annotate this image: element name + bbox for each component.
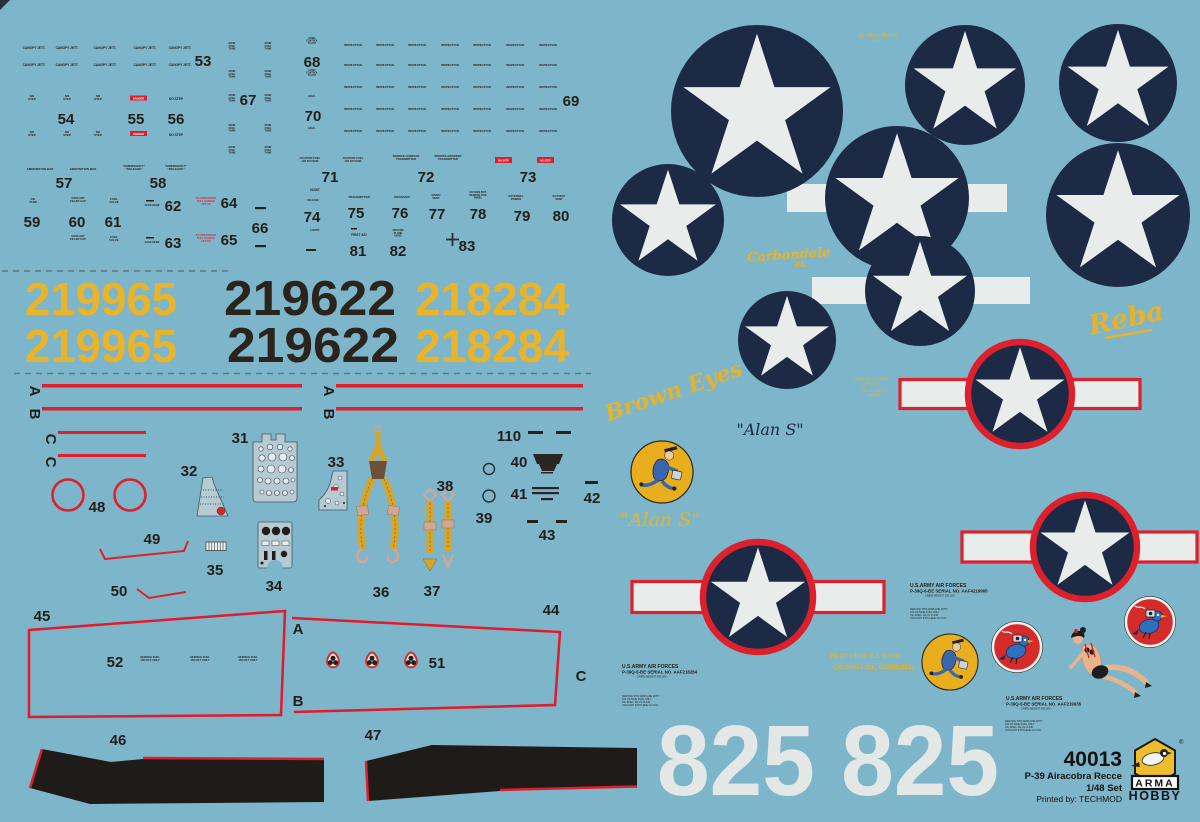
dash-decal	[351, 228, 357, 230]
stencil-text: DANGER	[133, 132, 144, 136]
part-number-label: 41	[511, 486, 528, 503]
instrument-panel-decal-31	[253, 434, 297, 502]
stencil-text: "EMERGENCY""RELEASE"	[165, 164, 188, 171]
stencil-text: INSPECTION	[473, 107, 491, 111]
stencil-text: INSPECTION	[506, 63, 524, 67]
part-number-label: 81	[350, 243, 367, 260]
serial-yellow: 218284	[415, 320, 569, 372]
stencil-text: INSPECTION	[408, 85, 426, 89]
part-number-label: A	[26, 386, 43, 397]
stencil-text: INSPECTION	[506, 43, 524, 47]
stencil-text: INSPECTION	[344, 129, 362, 133]
stencil-text: NO STEP	[540, 159, 551, 162]
part-number-label: 35	[207, 562, 224, 579]
part-number-label: 37	[424, 583, 441, 600]
part-number-label: 75	[348, 205, 365, 222]
part-number-label: 50	[111, 583, 128, 600]
script-crew2-sub: ARMORER	[866, 394, 881, 397]
part-number-label: 51	[429, 655, 446, 672]
stencil-text: DANGER	[133, 96, 144, 100]
part-number-label: 74	[304, 209, 321, 226]
crow-camera-squadron-emblem	[1125, 597, 1176, 648]
stencil-text: INSPECTION	[408, 43, 426, 47]
stencil-text: COOLANTFILLER CAP	[70, 196, 86, 203]
stencil-text: INSPECTION	[506, 107, 524, 111]
trim-stripe-decals	[42, 384, 583, 457]
script-carbondale: Carbondale	[747, 245, 831, 266]
part-number-label: 47	[365, 727, 382, 744]
script-carbondale-sub: PA.	[794, 260, 808, 269]
dash-decal	[556, 431, 571, 434]
stencil-text: COOLANTFILLER CAP	[70, 234, 86, 241]
tail-code-decals: 825 825	[657, 705, 999, 817]
part-number-label: 58	[150, 175, 167, 192]
stencil-text: MAINFUELTANK	[228, 123, 235, 133]
stencil-text: MAINFUELTANK	[264, 145, 271, 155]
part-number-label: 78	[470, 206, 487, 223]
part-number-label: 44	[543, 602, 560, 619]
stencil-text: BATTERYVENT	[553, 194, 566, 201]
star-insignia	[865, 236, 975, 346]
propeller-warning-emblem	[327, 653, 339, 668]
part-number-label: 57	[56, 175, 73, 192]
part-number-label: 69	[563, 93, 580, 110]
part-number-label: 53	[195, 53, 212, 70]
part-number-label: C	[42, 434, 59, 445]
part-number-label: 82	[390, 243, 407, 260]
product-code: 40013	[1064, 748, 1122, 771]
stencil-text: INSPECTION	[344, 85, 362, 89]
part-number-label: 54	[58, 111, 75, 128]
stencil-text: JACK HERE	[145, 240, 160, 244]
part-number-label: 63	[165, 235, 182, 252]
stencil-text: INSPECTION	[408, 107, 426, 111]
stencil-text: FUELVALVE	[109, 235, 119, 242]
stencil-text: FIRST AID	[351, 233, 367, 237]
stencil-text: CANOPY JETT.	[23, 46, 46, 50]
script-crew2: Sgt. L. Baum	[861, 388, 888, 393]
dash-decal	[556, 520, 567, 523]
part-number-label: 34	[266, 578, 283, 595]
seat-harness-decal-36	[356, 426, 399, 562]
data-block-line: CREW WEIGHT 200 LBS.	[637, 675, 668, 679]
part-number-label: 83	[459, 238, 476, 255]
stencil-text: NOSTEP	[63, 130, 71, 137]
stencil-text: INSPECTION	[473, 43, 491, 47]
part-number-label: 65	[221, 232, 238, 249]
stencil-text: SERVICE FUEL100 OCT. ONLY	[140, 655, 160, 662]
printed-by: Printed by: TECHMOD	[1036, 794, 1122, 804]
product-scale: 1/48 Set	[1086, 783, 1123, 794]
stencil-text: AVIATION FUEL100 OCTANE	[342, 156, 363, 163]
stencil-text: COWLCONTROLPLATE	[306, 37, 318, 45]
stencil-text: JACK HERE	[145, 203, 160, 207]
part-number-label: 60	[69, 214, 86, 231]
stencil-text: TO OPEN DOORPULL HANDLELIFT UP	[196, 196, 216, 206]
part-number-label: 32	[181, 463, 198, 480]
stencil-text: NO STEP	[169, 133, 184, 137]
part-number-label: 110	[497, 428, 521, 445]
dash-decal	[255, 207, 266, 209]
stencil-text: MAX.	[309, 126, 316, 130]
data-block-line: P-39Q-5-BE SERIAL NO. AAF219935	[1006, 702, 1082, 707]
stencil-text: NOSTEP	[63, 94, 71, 101]
stencil-text: SERVICE THIS AIRPLANE WITH100 OCTANE FUE…	[622, 695, 659, 707]
stencil-text: CANOPY JETT.	[94, 46, 117, 50]
part-number-label: 71	[322, 169, 339, 186]
part-number-label: 70	[305, 108, 322, 125]
stencil-text: SERVICE THIS AIRPLANE WITH100 OCTANE FUE…	[1005, 720, 1042, 732]
part-number-label: 79	[514, 208, 531, 225]
stencil-text: CANOPY JETT.	[134, 46, 157, 50]
part-number-label: 42	[584, 490, 601, 507]
stencil-text: NOSTEP	[94, 94, 102, 101]
courier-squadron-emblem	[631, 441, 693, 503]
stencil-text: INSPECTION	[506, 129, 524, 133]
part-number-label: C	[576, 668, 587, 685]
part-number-label: 43	[539, 527, 556, 544]
stencil-text: AMMUNITION BOX	[27, 167, 54, 171]
stencil-text: HOIST	[310, 188, 320, 192]
stencil-text: CANOPY JETT.	[169, 46, 192, 50]
part-number-label: 59	[24, 214, 41, 231]
stencil-text: OXYGEN BOT.REMOVE THISPANEL	[469, 191, 487, 200]
part-number-label: 68	[304, 54, 321, 71]
crow-camera-squadron-emblem	[992, 622, 1043, 673]
stencil-text: INSPECTION	[376, 107, 394, 111]
part-number-label: B	[293, 693, 304, 710]
stencil-text: MAINFUELTANK	[264, 41, 271, 51]
stencil-text: INSPECTION	[441, 129, 459, 133]
part-number-label: 67	[240, 92, 257, 109]
stencil-text: MAINFUELTANK	[228, 69, 235, 79]
data-block-line: P-39Q-5-BE SERIAL NO. AAF218284	[622, 670, 698, 675]
star-insignia	[1059, 24, 1177, 142]
stencil-text: INSPECTION	[506, 85, 524, 89]
anti-glare-panel-decals	[30, 745, 637, 804]
stencil-text: MAINFUELTANK	[264, 93, 271, 103]
stencil-text: REMOTE AIRSPEEDTRANSMITTER	[435, 154, 462, 161]
script-crew1-sub: CREW CHIEF	[862, 383, 880, 386]
stencil-text: INSPECTION	[376, 129, 394, 133]
star-insignia	[738, 291, 836, 389]
serial-black: 219622	[224, 272, 396, 326]
stencil-text: CANOPY JETT.	[169, 63, 192, 67]
serial-yellow: 219965	[25, 320, 177, 372]
stencil-text: "EMERGENCY""RELEASE"	[123, 164, 146, 171]
part-number-label: 45	[34, 608, 51, 625]
part-number-label: 48	[89, 499, 106, 516]
star-insignia	[905, 25, 1025, 145]
stencil-text: INSPECTION	[376, 85, 394, 89]
product-name: P-39 Airacobra Recce	[1025, 771, 1122, 782]
dash-decal	[146, 237, 154, 239]
dash-decal	[146, 200, 154, 202]
placard-strip-decal-35	[206, 542, 226, 551]
star-insignia	[1046, 143, 1190, 287]
part-number-label: 31	[232, 430, 249, 447]
stencil-text: SERVICE THIS AIRPLANE WITH100 OCTANE FUE…	[910, 608, 947, 620]
decal-sheet: 219965 219622 218284 219965 219622 21828…	[0, 0, 1200, 822]
part-number-label: 56	[168, 111, 185, 128]
stencil-text: MAINFUELTANK	[228, 41, 235, 51]
stencil-text: TRANSMITTER	[348, 195, 370, 199]
stencil-text: TO OPEN DOORPULL HANDLELIFT UP	[196, 233, 216, 243]
data-block-line: CREW WEIGHT 200 LBS.	[925, 594, 956, 598]
dash-decal	[255, 245, 266, 247]
sheet-corner-mark	[0, 0, 10, 10]
product-info: 40013 P-39 Airacobra Recce 1/48 Set Prin…	[1025, 748, 1123, 804]
stencil-text: OILTANK	[29, 197, 38, 204]
stencil-text: GROUNDPLANEHERE	[392, 229, 403, 238]
part-number-label: A	[320, 386, 337, 397]
stencil-text: AVIATION FUEL100 OCTANE	[299, 156, 320, 163]
data-block-line: CREW WEIGHT 200 LBS.	[1021, 707, 1052, 711]
stencil-text: NO STEP	[498, 159, 509, 162]
part-number-label: 73	[520, 169, 537, 186]
stencil-text: EXTERNALPOWER	[508, 194, 523, 201]
stencil-text: CANOPY JETT.	[94, 63, 117, 67]
dash-decal	[585, 481, 598, 484]
stencil-text: INSPECTION	[344, 63, 362, 67]
stencil-text: INSPECTION	[344, 107, 362, 111]
stencil-text: INSPECTION	[408, 129, 426, 133]
stencil-text: MAINFUELTANK	[228, 93, 235, 103]
propeller-warning-emblems-51	[327, 653, 417, 668]
star-and-bars-insignia	[962, 495, 1197, 599]
script-brown-eyes: Brown Eyes	[601, 356, 746, 428]
propeller-warning-emblem	[405, 653, 417, 668]
star-insignia	[671, 25, 843, 197]
script-alan-s-yellow: "Alan S"	[620, 509, 700, 531]
star-and-bars-insignia	[632, 542, 884, 652]
serial-number-decals: 219965 219622 218284 219965 219622 21828…	[25, 272, 569, 373]
stencil-text: MAX.	[309, 94, 316, 98]
stencil-text: NOSTEP	[94, 130, 102, 137]
stencil-text: AMMUNITION BOX	[70, 167, 97, 171]
registered-mark: ®	[1179, 739, 1184, 746]
stencil-text: INSPECTION	[441, 63, 459, 67]
script-pilot-line: PILOT LIEUT. C.J. DAVIS	[830, 654, 900, 660]
stencil-text: INSPECTION	[539, 129, 557, 133]
part-number-label: B	[26, 409, 43, 420]
stencil-text: INSPECTION	[376, 63, 394, 67]
cross-decal	[452, 233, 454, 246]
script-alan-s-navy: "Alan S"	[736, 420, 803, 439]
stencil-text: INSPECTION	[473, 85, 491, 89]
stencil-text: RELEASE	[307, 199, 319, 202]
stencil-text: INSPECTION	[344, 43, 362, 47]
script-pilot-top-sub: PILOT	[871, 39, 883, 43]
stencil-text: INSPECTION	[441, 85, 459, 89]
part-number-label: 36	[373, 584, 390, 601]
stencil-text: SERVICE FUEL100 OCT. ONLY	[238, 655, 258, 662]
stencil-text: MAINFUELTANK	[228, 145, 235, 155]
stencil-text: CANOPY JETT.	[23, 63, 46, 67]
stencil-text: INSPECTION	[441, 43, 459, 47]
part-number-label: 80	[553, 208, 570, 225]
stencil-text: SERVICE FUEL100 OCT. ONLY	[190, 655, 210, 662]
part-number-label: B	[320, 409, 337, 420]
stencil-text: INSPECTION	[539, 43, 557, 47]
part-number-label: 76	[392, 205, 409, 222]
part-number-label: 38	[437, 478, 454, 495]
stencil-text: HOIST	[310, 228, 319, 232]
stencil-text: MAINFUELTANK	[264, 69, 271, 79]
star-and-bars-insignia	[900, 342, 1140, 446]
console-decal-32	[197, 477, 228, 516]
stencil-text: INSPECTION	[376, 43, 394, 47]
switch-panel-decal-34	[258, 522, 292, 576]
stencil-text: INSPECTION	[473, 129, 491, 133]
small-part-decals	[532, 454, 563, 500]
brand-hobby: HOBBY	[1129, 789, 1182, 803]
part-number-label: 40	[511, 454, 528, 471]
script-cc-line: C/C S/SGT. C.L. CEDRICELLI	[833, 665, 915, 671]
serial-yellow: 219965	[25, 273, 177, 325]
data-block-line: P-39Q-6-BE SERIAL NO. AAF4219965	[910, 589, 988, 594]
part-number-label: 52	[107, 654, 124, 671]
stencil-text: INSPECTION	[408, 63, 426, 67]
stencil-text: FUELVALVE	[109, 197, 119, 204]
brand-arma: ARMA	[1135, 778, 1175, 790]
script-crew1: S/Sgt. Jack Aponik	[852, 376, 890, 381]
propeller-warning-emblem	[366, 653, 378, 668]
stencil-text: NO STEP	[169, 97, 184, 101]
part-number-label: 39	[476, 510, 493, 527]
side-panel-decal-33	[319, 471, 347, 510]
lap-belt-decal-37	[423, 489, 454, 571]
decal-sheet-canvas: 219965 219622 218284 219965 219622 21828…	[0, 0, 1200, 822]
star-insignia	[612, 164, 724, 276]
stencil-text: RADIOVENT	[431, 193, 441, 200]
serial-black: 219622	[227, 319, 399, 373]
part-number-label: A	[293, 621, 304, 638]
stencil-text: CANOPY JETT.	[56, 46, 79, 50]
part-number-label: 33	[328, 454, 345, 471]
part-number-label: 49	[144, 531, 161, 548]
serial-yellow: 218284	[415, 273, 569, 325]
part-number-label: 66	[252, 220, 269, 237]
dash-decal	[528, 431, 543, 434]
stencil-text: CANOPY JETT.	[56, 63, 79, 67]
stencil-text: NOSTEP	[28, 94, 36, 101]
stencil-text: REMOTE COMPASSTRANSMITTER	[393, 154, 420, 161]
part-number-label: 72	[418, 169, 435, 186]
part-number-label: 61	[105, 214, 122, 231]
dash-decal	[306, 249, 316, 251]
stencil-text: INSPECTION	[473, 63, 491, 67]
part-number-label: C	[42, 457, 59, 468]
stencil-text: INSPECTION	[539, 85, 557, 89]
part-number-label: 62	[165, 198, 182, 215]
courier-squadron-emblem	[922, 634, 978, 690]
arma-hobby-logo: ARMA HOBBY ®	[1129, 739, 1184, 803]
part-number-label: 46	[110, 732, 127, 749]
stencil-text: INSPECTION	[539, 63, 557, 67]
stencil-text: NOSTEP	[28, 130, 36, 137]
part-number-label: 77	[429, 206, 446, 223]
stencil-text: CANOPY JETT.	[134, 63, 157, 67]
part-number-label: 64	[221, 195, 238, 212]
stencil-text: RECEIVER	[394, 195, 410, 199]
dash-decal	[527, 520, 538, 523]
stencil-text: INSPECTION	[441, 107, 459, 111]
stencil-text: INSPECTION	[539, 107, 557, 111]
part-number-label: 55	[128, 111, 145, 128]
stencil-text: MAINFUELTANK	[264, 123, 271, 133]
